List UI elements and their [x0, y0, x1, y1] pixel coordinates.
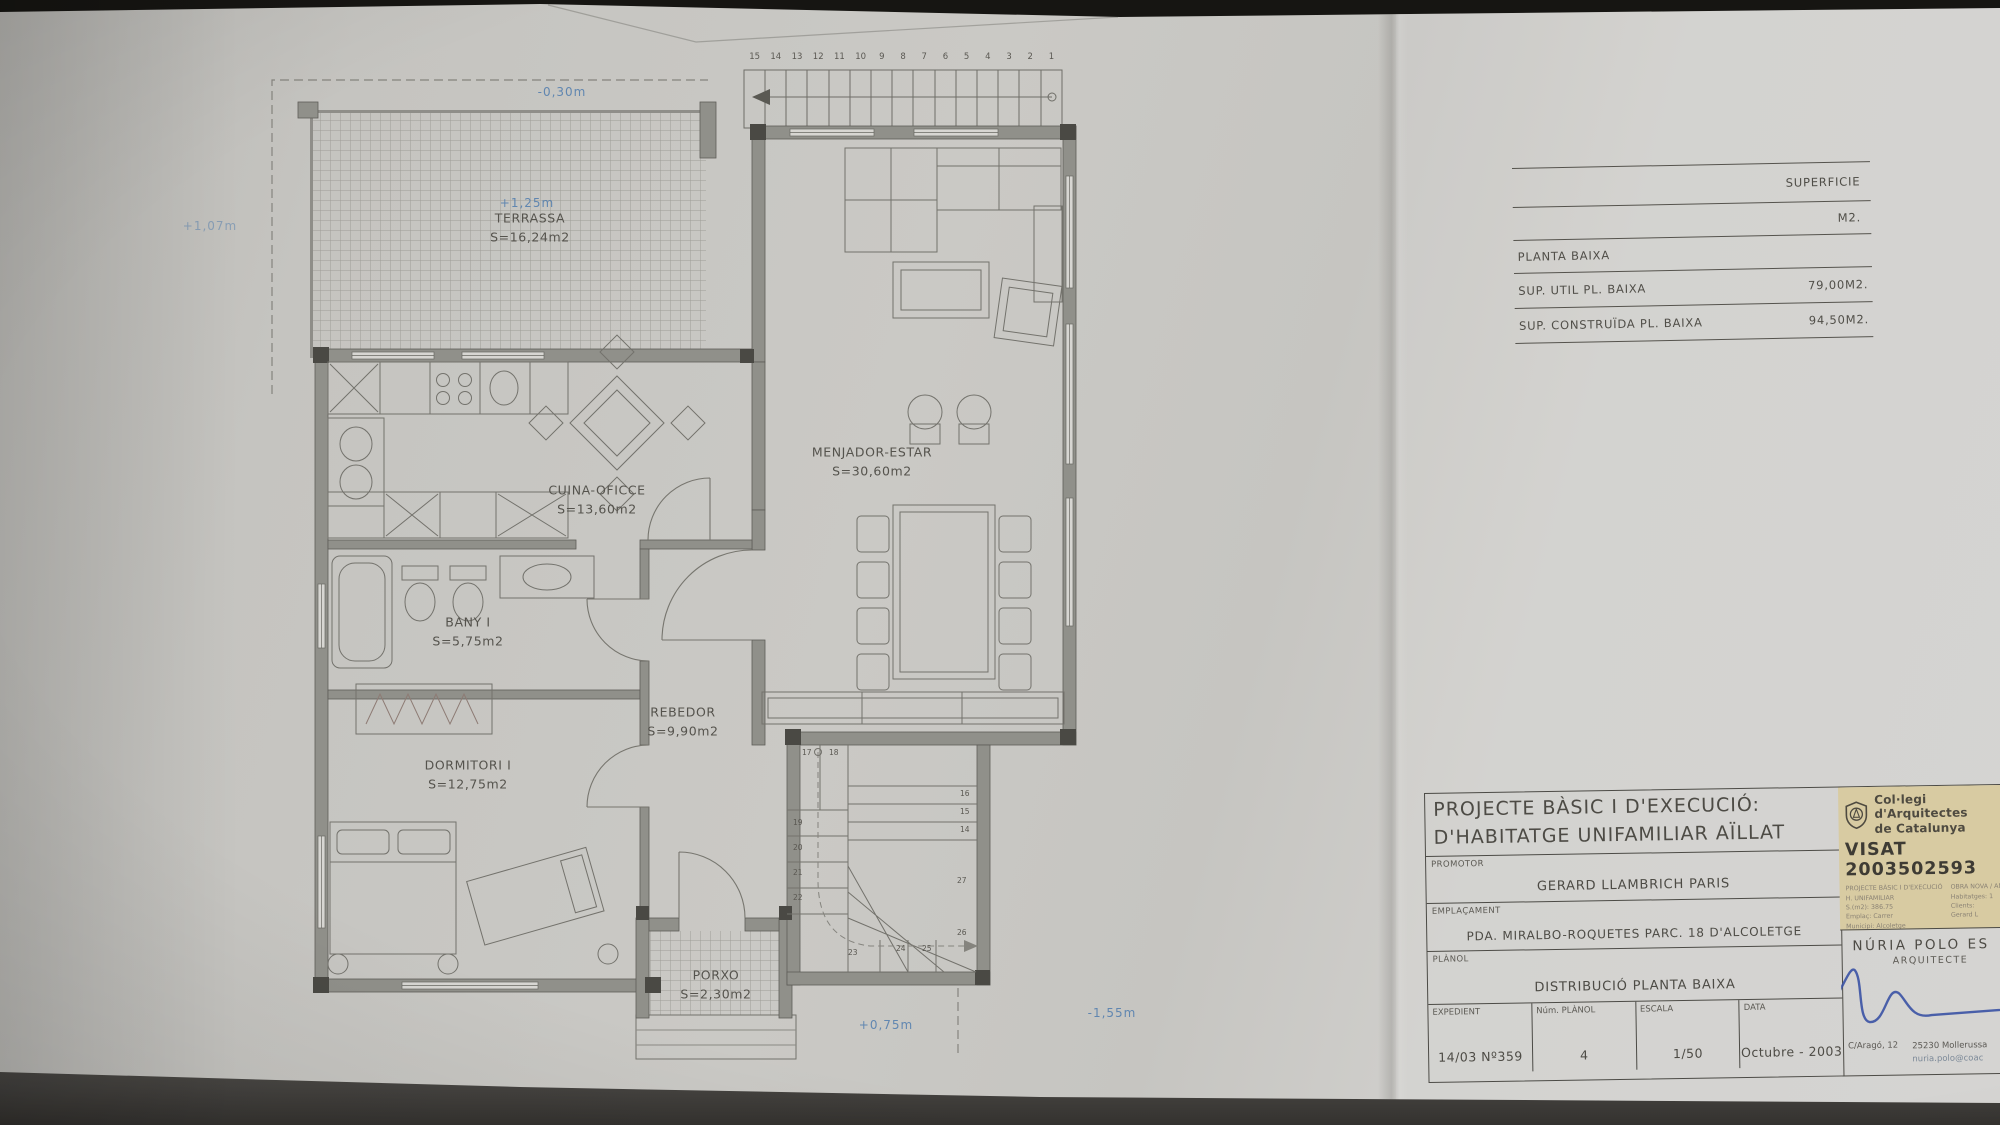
coac-logo-icon — [1844, 801, 1868, 829]
stair-number: 17 — [802, 748, 812, 757]
promotor-row: PROMOTOR GERARD LLAMBRICH PARIS — [1426, 850, 1841, 903]
title-block-right: Col·legi d'Arquitectes de Catalunya VISA… — [1838, 784, 2000, 1077]
surface-header: SUPERFICIE — [1516, 174, 1866, 195]
row-label: SUP. UTIL PL. BAIXA — [1518, 281, 1646, 297]
emplacament-value: PDA. MIRALBO-ROQUETES PARC. 18 D'ALCOLET… — [1427, 923, 1841, 944]
stamp-org-line1: Col·legi d'Arquitectes — [1874, 792, 1968, 821]
level-annotation: -1,55m — [1088, 1006, 1137, 1020]
stair-number: 27 — [957, 876, 967, 885]
room-area: S=5,75m2 — [432, 634, 503, 649]
num-planol-cell: Núm. PLÀNOL 4 — [1532, 1002, 1637, 1072]
architect-box: NÚRIA POLO ES ARQUITECTE C/Aragó, 12 252… — [1840, 928, 2000, 1081]
title-block-left: PROJECTE BÀSIC I D'EXECUCIÓ: D'HABITATGE… — [1424, 786, 1845, 1082]
bedroom-furniture — [328, 684, 618, 974]
stamp-small-print: PROJECTE BÀSIC I D'EXECUCIÓH. UNIFAMILIA… — [1845, 882, 2000, 931]
escala-label: ESCALA — [1640, 1004, 1673, 1015]
stamp-small-left-column: PROJECTE BÀSIC I D'EXECUCIÓH. UNIFAMILIA… — [1845, 883, 1943, 930]
stamp-visat-number: VISAT 2003502593 — [1845, 838, 2000, 881]
expedient-value: 14/03 Nº359 — [1429, 1048, 1532, 1065]
room-label-dormitori: DORMITORI I S=12,75m2 — [425, 756, 512, 795]
stamp-small-line: Gerard L — [1951, 910, 2000, 921]
stair-number: 2 — [1020, 52, 1041, 67]
stair-number: 5 — [956, 52, 977, 67]
room-label-porxo: PORXO S=2,30m2 — [680, 966, 751, 1005]
stair-number: 18 — [829, 748, 839, 757]
stair-number: 23 — [848, 948, 858, 957]
stamp-small-right-column: OBRA NOVA / AMHabitatges: 1Clients:Gerar… — [1950, 882, 2000, 931]
room-name: MENJADOR-ESTAR — [812, 445, 932, 460]
planol-value: DISTRIBUCIÓ PLANTA BAIXA — [1428, 975, 1842, 997]
room-label-menjador: MENJADOR-ESTAR S=30,60m2 — [812, 443, 932, 482]
address-city: 25230 Mollerussa — [1912, 1039, 1987, 1054]
stair-number: 21 — [793, 868, 803, 877]
room-area: S=13,60m2 — [557, 502, 637, 517]
room-area: S=12,75m2 — [428, 777, 508, 792]
emplacament-label: EMPLAÇAMENT — [1432, 906, 1501, 917]
paper-crease-lines — [548, 1, 1120, 42]
room-name: DORMITORI I — [425, 758, 512, 773]
stair-number: 3 — [998, 52, 1019, 67]
escala-cell: ESCALA 1/50 — [1636, 1000, 1741, 1070]
stair-number: 9 — [871, 52, 892, 67]
escala-value: 1/50 — [1637, 1045, 1740, 1062]
level-annotation: +0,75m — [859, 1018, 913, 1032]
stamp-org-line2: de Catalunya — [1875, 820, 1966, 835]
stair-number: 26 — [957, 928, 967, 937]
coac-stamp: Col·legi d'Arquitectes de Catalunya VISA… — [1838, 785, 2000, 931]
promotor-label: PROMOTOR — [1431, 859, 1484, 870]
stair-number: 14 — [960, 825, 970, 834]
room-name: CUINA-OFICCE — [548, 483, 645, 498]
stair-number: 16 — [960, 789, 970, 798]
room-area: S=2,30m2 — [680, 987, 751, 1002]
living-furniture — [762, 148, 1064, 724]
title-block: PROJECTE BÀSIC I D'EXECUCIÓ: D'HABITATGE… — [1424, 784, 2000, 1089]
room-label-bany: BANY I S=5,75m2 — [432, 613, 503, 652]
room-label-cuina: CUINA-OFICCE S=13,60m2 — [548, 481, 645, 520]
stair-number: 19 — [793, 818, 803, 827]
num-planol-label: Núm. PLÀNOL — [1536, 1005, 1595, 1016]
stair-number: 6 — [935, 52, 956, 67]
section-title: PLANTA BAIXA — [1518, 248, 1610, 264]
exterior-stairs — [744, 70, 1062, 128]
surface-table: SUPERFICIE M2. PLANTA BAIXA SUP. UTIL PL… — [1512, 161, 1873, 344]
expedient-label: EXPEDIENT — [1432, 1007, 1480, 1018]
project-title-line2: D'HABITATGE UNIFAMILIAR AÏLLAT — [1434, 819, 1832, 853]
row-label: SUP. CONSTRUÏDA PL. BAIXA — [1519, 315, 1703, 333]
emplacament-row: EMPLAÇAMENT PDA. MIRALBO-ROQUETES PARC. … — [1427, 897, 1842, 951]
stair-number: 1 — [1041, 52, 1062, 67]
stair-number: 24 — [896, 944, 906, 953]
stair-number: 25 — [922, 944, 932, 953]
stair-number: 15 — [960, 807, 970, 816]
room-area: S=9,90m2 — [647, 724, 718, 739]
address-street: C/Aragó, 12 — [1848, 1040, 1899, 1068]
stair-number: 15 — [744, 52, 765, 67]
level-annotation: +1,07m — [183, 219, 237, 233]
room-name: REBEDOR — [650, 705, 715, 720]
planol-label: PLÀNOL — [1433, 954, 1469, 965]
data-value: Octubre - 2003 — [1740, 1043, 1843, 1060]
stair-number: 13 — [786, 52, 807, 67]
row-value: 94,50M2. — [1809, 312, 1869, 327]
stair-number: 7 — [914, 52, 935, 67]
photo-of-floor-plan: TERRASSA S=16,24m2 CUINA-OFICCE S=13,60m… — [0, 0, 2000, 1125]
data-cell: DATA Octubre - 2003 — [1740, 998, 1844, 1068]
stair-number: 20 — [793, 843, 803, 852]
num-planol-value: 4 — [1533, 1047, 1636, 1064]
planol-row: PLÀNOL DISTRIBUCIÓ PLANTA BAIXA — [1427, 945, 1842, 1004]
stamp-org-name: Col·legi d'Arquitectes de Catalunya — [1874, 791, 2000, 836]
row-value: 79,00M2. — [1808, 277, 1868, 292]
room-name: PORXO — [693, 968, 740, 983]
stair-number: 10 — [850, 52, 871, 67]
room-name: TERRASSA — [495, 211, 565, 226]
drawing-sheet: TERRASSA S=16,24m2 CUINA-OFICCE S=13,60m… — [0, 0, 2000, 1125]
stair-number: 11 — [829, 52, 850, 67]
room-area: S=30,60m2 — [832, 464, 912, 479]
exterior-stair-numbers: 151413121110987654321 — [744, 52, 1062, 67]
kitchen-furniture — [328, 335, 705, 538]
project-title: PROJECTE BÀSIC I D'EXECUCIÓ: D'HABITATGE… — [1425, 787, 1840, 856]
stair-number: 12 — [808, 52, 829, 67]
level-annotation: +1,25m — [500, 196, 554, 210]
architect-address: C/Aragó, 12 25230 Mollerussa nuria.polo@… — [1848, 1039, 1988, 1068]
stair-number: 8 — [892, 52, 913, 67]
address-email: nuria.polo@coac — [1912, 1053, 1987, 1068]
stamp-small-line: OBRA NOVA / AM — [1950, 882, 2000, 893]
room-label-rebedor: REBEDOR S=9,90m2 — [647, 703, 718, 742]
title-block-bottom-row: EXPEDIENT 14/03 Nº359 Núm. PLÀNOL 4 ESCA… — [1428, 998, 1843, 1072]
stamp-small-line: PROJECTE BÀSIC I D'EXECUCIÓ — [1845, 883, 1942, 894]
unit-header: M2. — [1517, 210, 1867, 231]
stamp-small-line: Habitatges: 1 — [1951, 891, 2000, 902]
room-area: S=16,24m2 — [490, 230, 570, 245]
promotor-value: GERARD LLAMBRICH PARIS — [1426, 874, 1840, 896]
stair-number: 22 — [793, 893, 803, 902]
room-label-terrassa: TERRASSA S=16,24m2 — [490, 209, 570, 248]
level-annotation: -0,30m — [538, 85, 587, 99]
stair-number: 14 — [765, 52, 786, 67]
stair-number: 4 — [977, 52, 998, 67]
signature — [1840, 949, 2000, 1048]
data-label: DATA — [1744, 1003, 1766, 1013]
room-name: BANY I — [445, 615, 490, 630]
paper-fold-seam — [1378, 0, 1408, 1125]
expedient-cell: EXPEDIENT 14/03 Nº359 — [1428, 1003, 1533, 1073]
interior-stairs — [787, 745, 978, 972]
